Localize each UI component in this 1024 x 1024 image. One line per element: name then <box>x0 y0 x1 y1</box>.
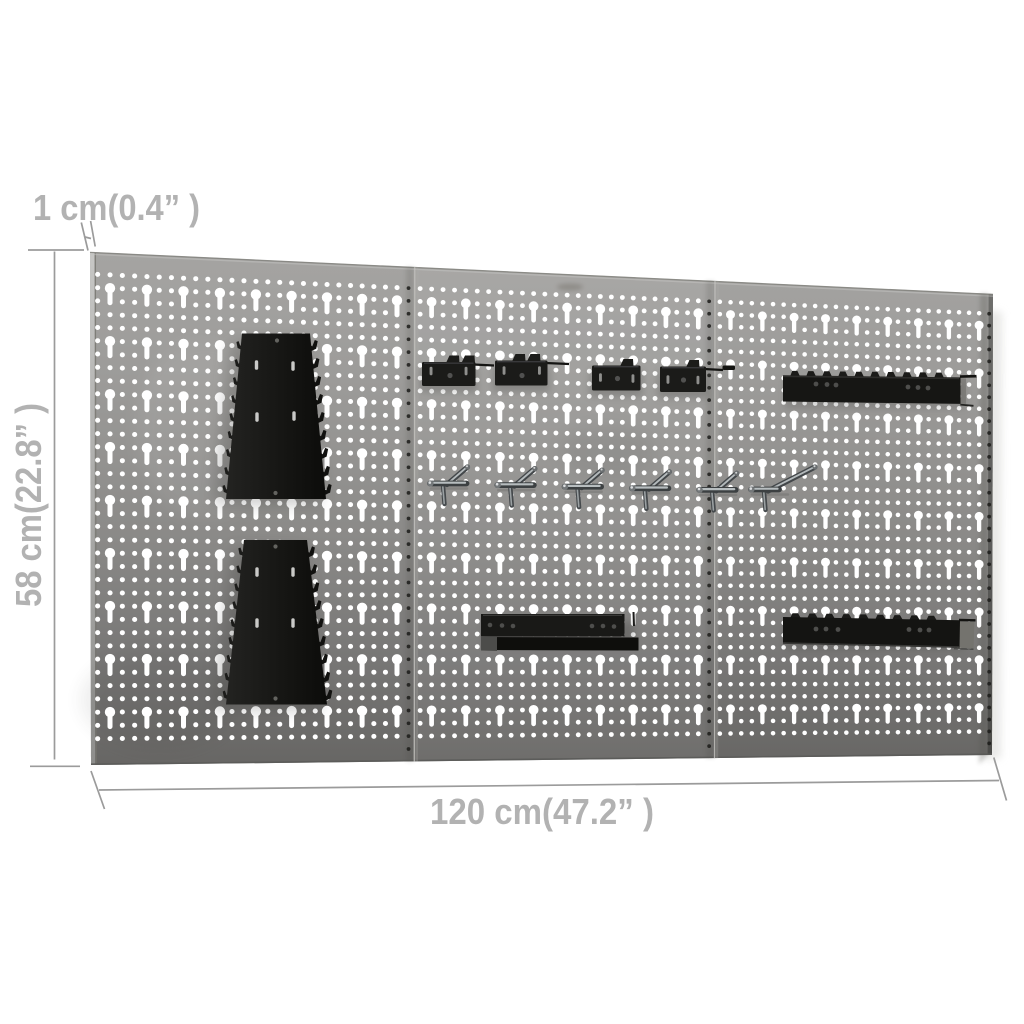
svg-text:58 cm(22.8” ): 58 cm(22.8” ) <box>8 403 49 607</box>
svg-text:120 cm(47.2” ): 120 cm(47.2” ) <box>430 791 654 832</box>
svg-text:1 cm(0.4” ): 1 cm(0.4” ) <box>33 187 200 228</box>
